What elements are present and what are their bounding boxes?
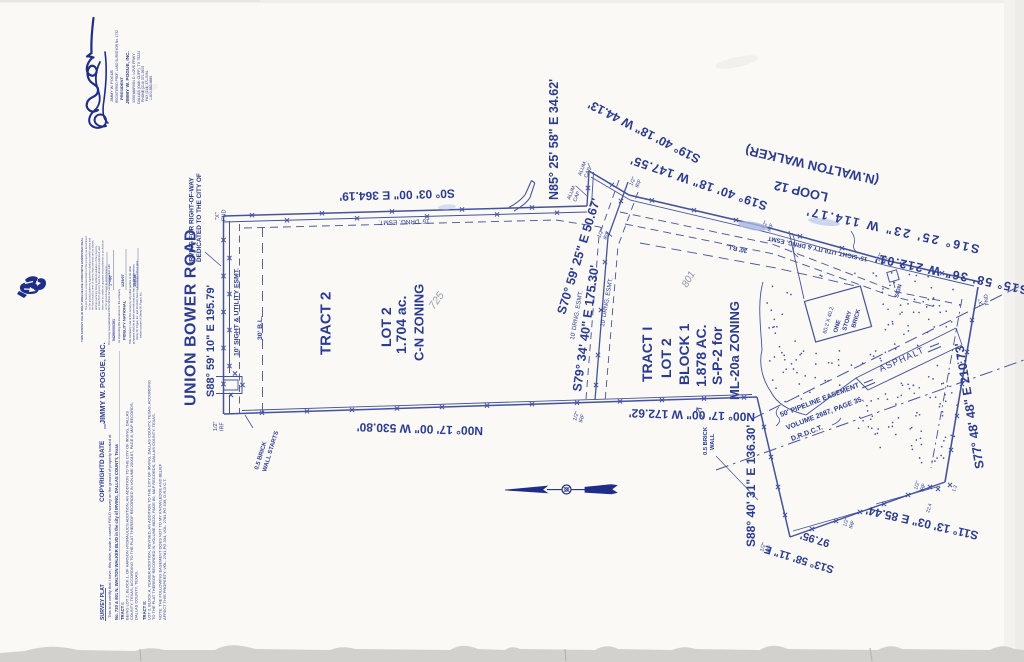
svg-text:JIMMY W. POGUE, INC.: JIMMY W. POGUE, INC. bbox=[98, 342, 107, 424]
svg-text:The survey was performed 2767G: The survey was performed 2767G SPELL for… bbox=[107, 264, 111, 345]
svg-text:TO THE PLAT THEREOF RECORDED I: TO THE PLAT THEREOF RECORDED IN VOLUME 8… bbox=[151, 413, 156, 620]
svg-text:1350 MARVIN D. LOVE FRWY: 1350 MARVIN D. LOVE FRWY bbox=[132, 53, 136, 103]
svg-text:ML-20a ZONING: ML-20a ZONING bbox=[727, 301, 742, 400]
svg-text:0.5 BRICK: 0.5 BRICK bbox=[703, 426, 709, 455]
svg-text:BLOCK 1: BLOCK 1 bbox=[676, 323, 692, 385]
svg-text:S88° 40' 31" E 136.30': S88° 40' 31" E 136.30' bbox=[744, 425, 758, 547]
svg-text:TRACT I: TRACT I bbox=[639, 327, 655, 382]
svg-text:WALL: WALL bbox=[710, 433, 716, 450]
svg-text:JIMMY W. POGUE, INC.: JIMMY W. POGUE, INC. bbox=[125, 51, 131, 104]
svg-text:C-N ZONING: C-N ZONING bbox=[412, 284, 427, 361]
svg-text:PRESIDENT: PRESIDENT bbox=[119, 77, 124, 100]
svg-text:1.704 ac.: 1.704 ac. bbox=[393, 296, 409, 354]
svg-text:Title Company. Use of this sur: Title Company. Use of this survey by any… bbox=[128, 266, 132, 344]
svg-text:LOT 2: LOT 2 bbox=[378, 307, 394, 347]
svg-text:DEDICATED TO THE CITY OF: DEDICATED TO THE CITY OF bbox=[196, 173, 203, 262]
svg-text:purposes shall be at their own: purposes shall be at their own risk and … bbox=[132, 263, 136, 344]
svg-text:54290000391: 54290000391 bbox=[112, 319, 116, 341]
svg-text:No. 720 & 801 N. WALTON WAL: No. 720 & 801 N. WALTON WALKER BLVD in t… bbox=[114, 443, 119, 620]
svg-text:1-800-583-6885: 1-800-583-6885 bbox=[149, 76, 153, 100]
svg-text:TRACT 2: TRACT 2 bbox=[318, 292, 335, 355]
svg-text:FIDELITY NATIONAL: FIDELITY NATIONAL bbox=[122, 300, 127, 340]
svg-text:AFFECT THIS PROPERTY. VOL. 278: AFFECT THIS PROPERTY. VOL. 2781,PG.334, … bbox=[162, 478, 167, 620]
svg-text:JIMMY W. POGUE: JIMMY W. POGUE bbox=[110, 70, 114, 102]
svg-text:30' B.L.: 30' B.L. bbox=[257, 316, 264, 340]
svg-text:COPYRIGHTD DATE: COPYRIGHTD DATE bbox=[99, 440, 106, 502]
svg-text:This is to certify that I have: This is to certify that I have, this dat… bbox=[107, 434, 112, 618]
svg-text:S88° 59' 10" E 195.79': S88° 59' 10" E 195.79' bbox=[205, 285, 217, 397]
svg-text:THIS SURVEY VALID ONLY W/BLUEL: THIS SURVEY VALID ONLY W/BLUELINE FORM W… bbox=[80, 237, 84, 342]
svg-text:N85° 25' 58" E 34.62': N85° 25' 58" E 34.62' bbox=[547, 79, 561, 200]
svg-text:1/2": 1/2" bbox=[213, 422, 219, 431]
svg-text:S-P-2 for: S-P-2 for bbox=[709, 326, 725, 385]
svg-text:15' DRNG. ESMT.: 15' DRNG. ESMT. bbox=[378, 217, 430, 225]
svg-text:10' SIGHT & UTILITY ESMT.: 10' SIGHT & UTILITY ESMT. bbox=[234, 268, 241, 356]
svg-text:1.878 AC.: 1.878 AC. bbox=[693, 324, 709, 387]
svg-text:LOT 2: LOT 2 bbox=[658, 338, 674, 378]
svg-text:1/29/07: 1/29/07 bbox=[121, 274, 125, 287]
svg-text:As impending title insurance c: As impending title insurance co. the com… bbox=[117, 288, 121, 343]
svg-text:DALLAS COUNTY, TEXAS.: DALLAS COUNTY, TEXAS. bbox=[134, 571, 139, 620]
svg-text:written consent of Jimmy W. Po: written consent of Jimmy W. Pogue, Inc. bbox=[139, 292, 143, 338]
svg-text:"X": "X" bbox=[215, 212, 221, 220]
svg-text:IRVING FOR RIGHT-OF-WAY: IRVING FOR RIGHT-OF-WAY bbox=[189, 177, 196, 263]
svg-text:IRF: IRF bbox=[220, 422, 226, 431]
svg-text:Jimmy W. Pogue, Inc. and all: Jimmy W. Pogue, Inc. and all others have… bbox=[135, 261, 139, 340]
